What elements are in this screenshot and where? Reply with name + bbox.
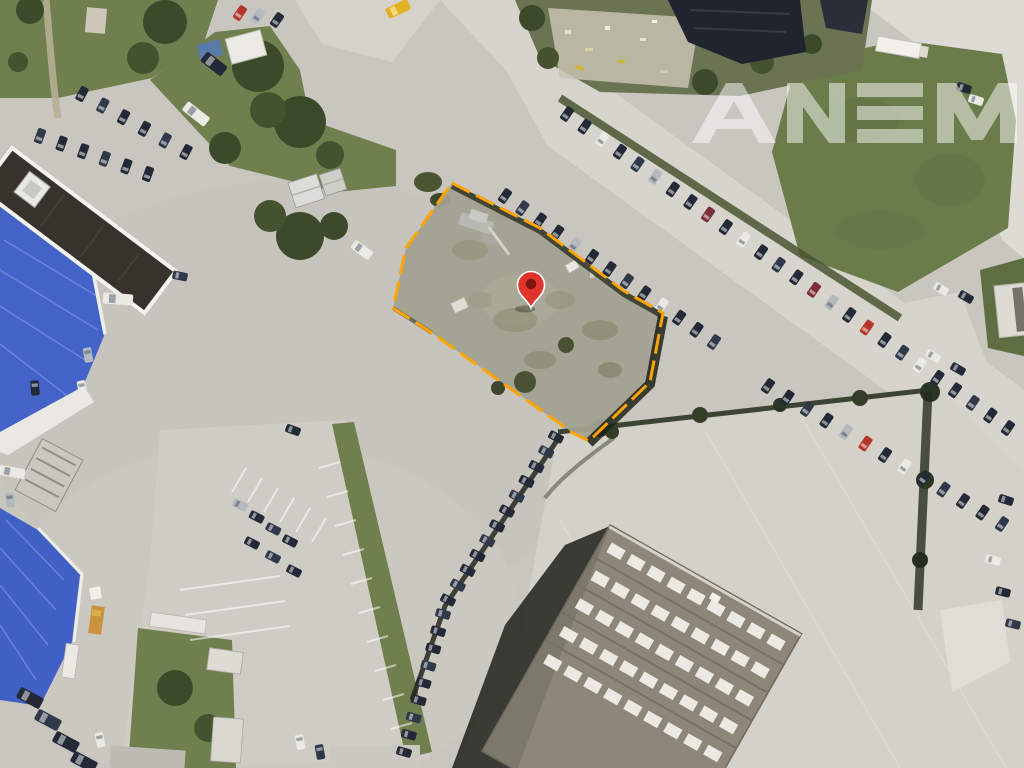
aerial-imagery: ANEM [0,0,1024,768]
pin-inner-dot [526,279,536,289]
parked-car [30,380,40,396]
right-edge-building [994,283,1024,338]
satellite-map[interactable]: ANEM [0,0,1024,768]
parked-car [103,292,134,305]
watermark-letter-e [857,83,923,143]
